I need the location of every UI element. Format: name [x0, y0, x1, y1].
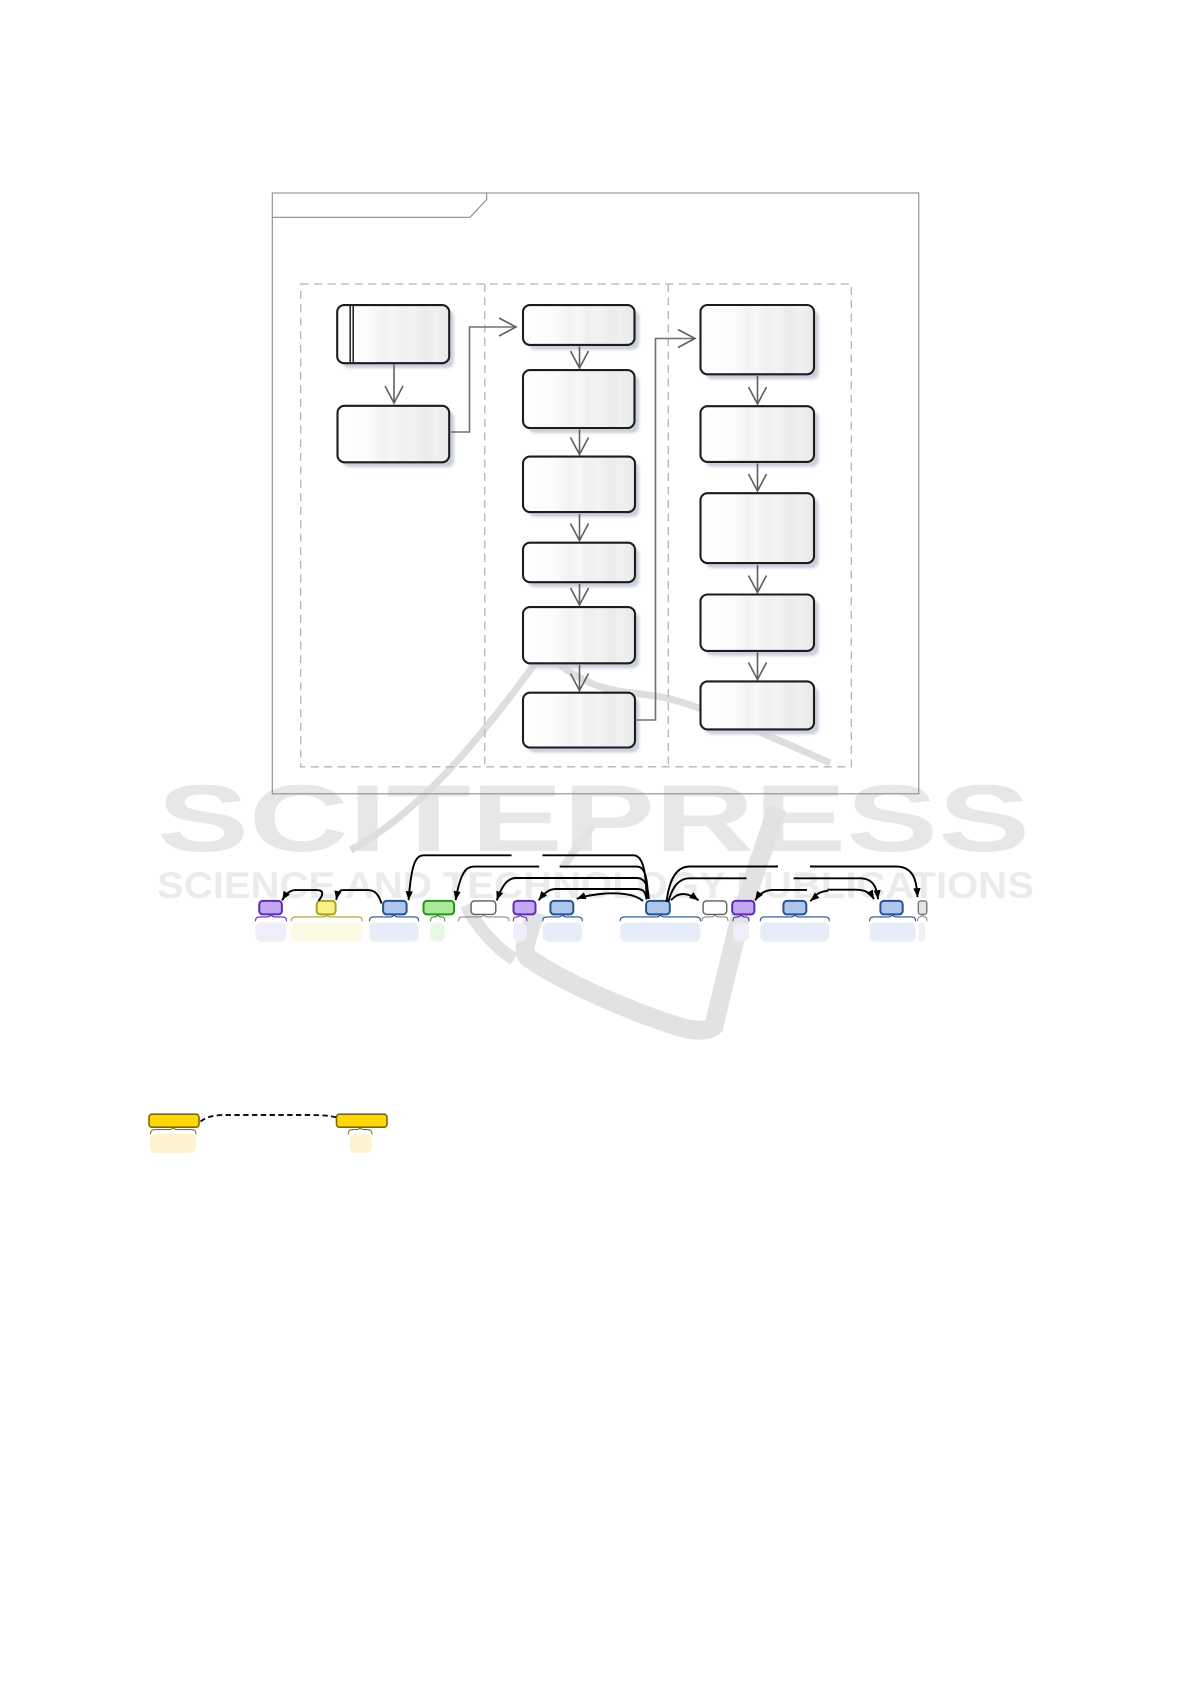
- svg-text:SCIENCE AND TECHNOLOGY PUBLICA: SCIENCE AND TECHNOLOGY PUBLICATIONS: [157, 865, 1034, 906]
